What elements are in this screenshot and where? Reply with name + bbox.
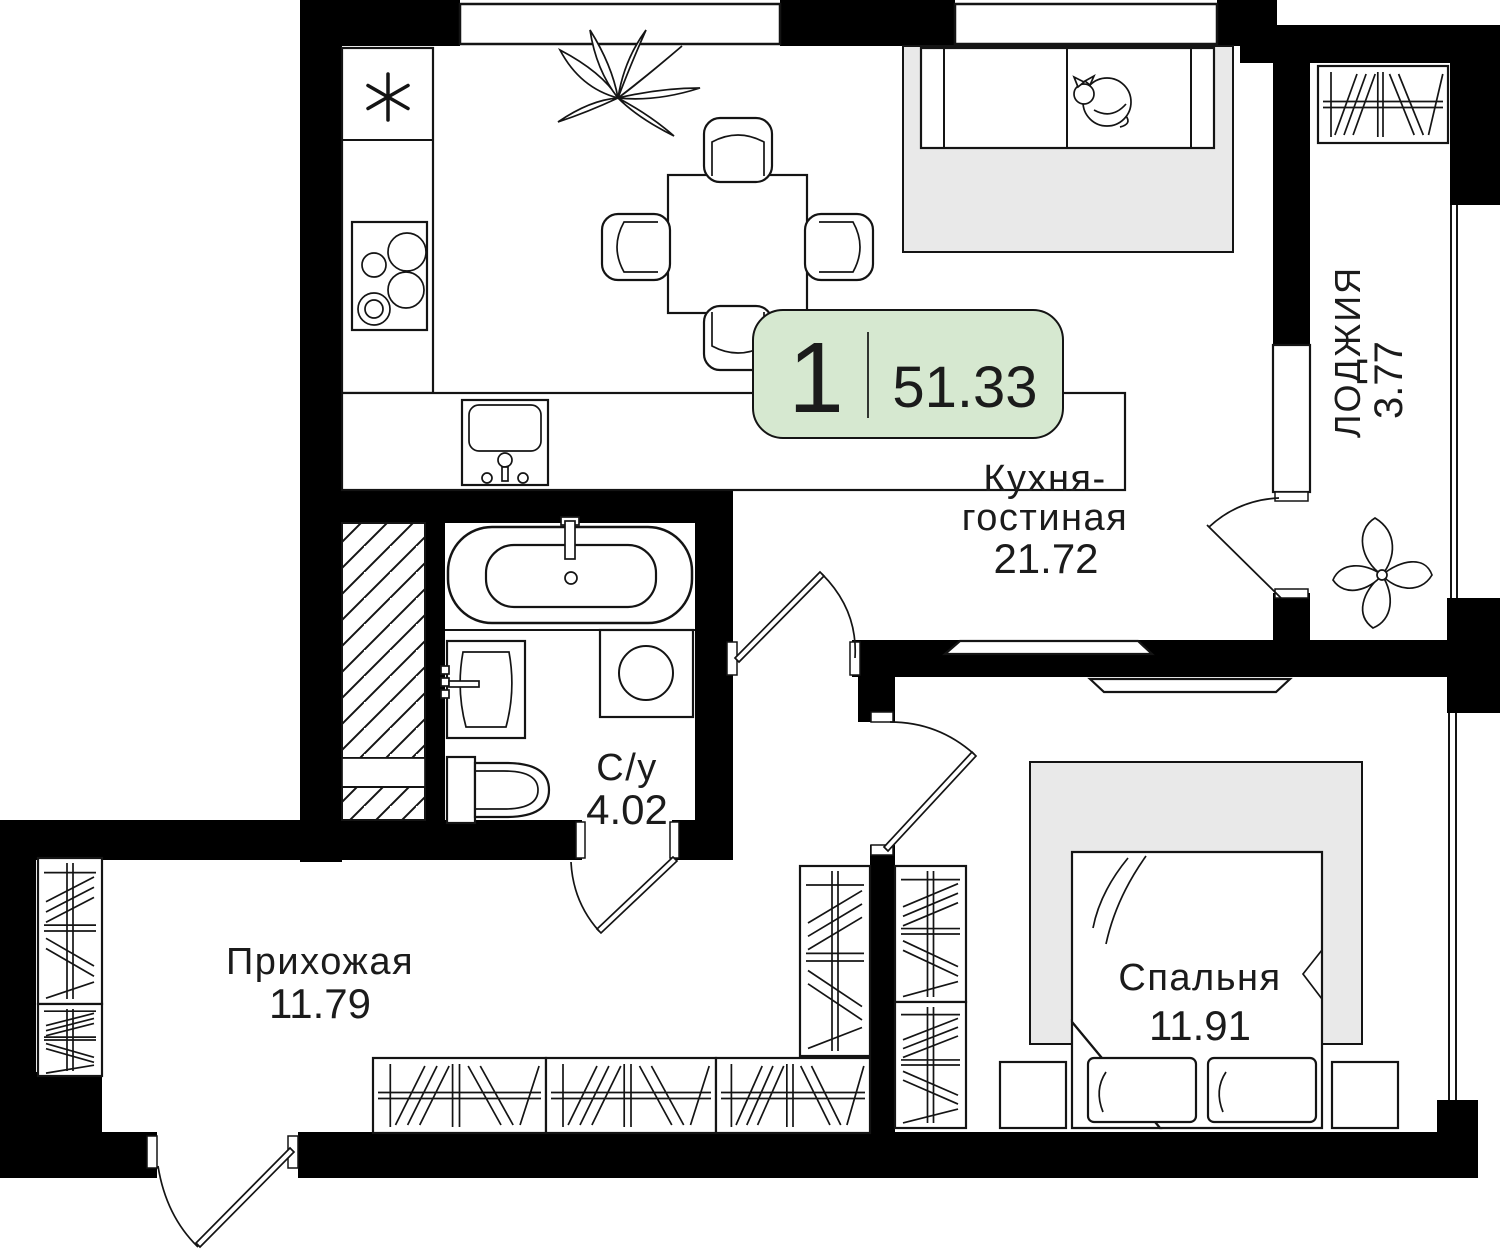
bathtub-icon <box>448 517 692 623</box>
kitchen-living-area: 21.72 <box>993 535 1098 582</box>
loggia-glazing-icon <box>1451 205 1457 598</box>
bedroom-door-icon <box>871 712 976 855</box>
chair-icon <box>704 118 772 182</box>
kitchen-living-label-2: гостиная <box>962 497 1129 539</box>
bathroom-sink-icon <box>441 641 525 738</box>
bathroom-label: С/у <box>596 747 658 789</box>
area-badge: 1 51.33 <box>753 310 1063 438</box>
tv-icon <box>1090 679 1290 692</box>
shaft-hatch <box>342 523 425 820</box>
chair-icon <box>805 214 873 280</box>
bathroom-area: 4.02 <box>586 786 668 833</box>
tv-icon <box>945 641 1152 654</box>
kitchen-sink-icon <box>462 400 548 485</box>
hallway-label: Прихожая <box>226 941 414 983</box>
dining-table-icon <box>668 175 807 313</box>
toilet-icon <box>447 757 549 823</box>
badge-total-area: 51.33 <box>892 355 1037 420</box>
floor-plan[interactable]: Кухня- гостиная 21.72 ЛОДЖИЯ 3.77 С/у 4.… <box>0 0 1500 1259</box>
window-icon <box>955 4 1217 44</box>
loggia-label: ЛОДЖИЯ <box>1327 266 1368 438</box>
balcony-door-icon <box>1207 492 1308 598</box>
bedroom-window-icon <box>1449 713 1456 1100</box>
bedroom-area: 11.91 <box>1149 1002 1251 1049</box>
bedroom <box>895 679 1398 1128</box>
badge-rooms-count: 1 <box>788 322 844 434</box>
hallway <box>38 858 870 1133</box>
sofa-icon <box>903 46 1233 252</box>
plant-icon <box>1333 518 1432 628</box>
bedroom-label: Спальня <box>1118 957 1281 999</box>
loggia-area: 3.77 <box>1367 341 1411 419</box>
bathroom-door-icon <box>571 822 679 933</box>
plant-icon <box>558 30 700 136</box>
cooktop-icon <box>352 222 427 330</box>
kitchen-living-label: Кухня- <box>983 458 1106 500</box>
hallway-area: 11.79 <box>269 980 371 1027</box>
entrance-door-icon <box>147 1136 298 1247</box>
washing-machine-icon <box>600 630 693 717</box>
window-icon <box>460 4 780 44</box>
balcony-window-panel-icon <box>1273 345 1310 492</box>
nightstand-icon <box>1000 1062 1066 1128</box>
kitchen-door-icon <box>727 572 860 675</box>
chair-icon <box>602 214 670 280</box>
floor-plan-canvas: Кухня- гостиная 21.72 ЛОДЖИЯ 3.77 С/у 4.… <box>0 0 1500 1259</box>
nightstand-icon <box>1332 1062 1398 1128</box>
